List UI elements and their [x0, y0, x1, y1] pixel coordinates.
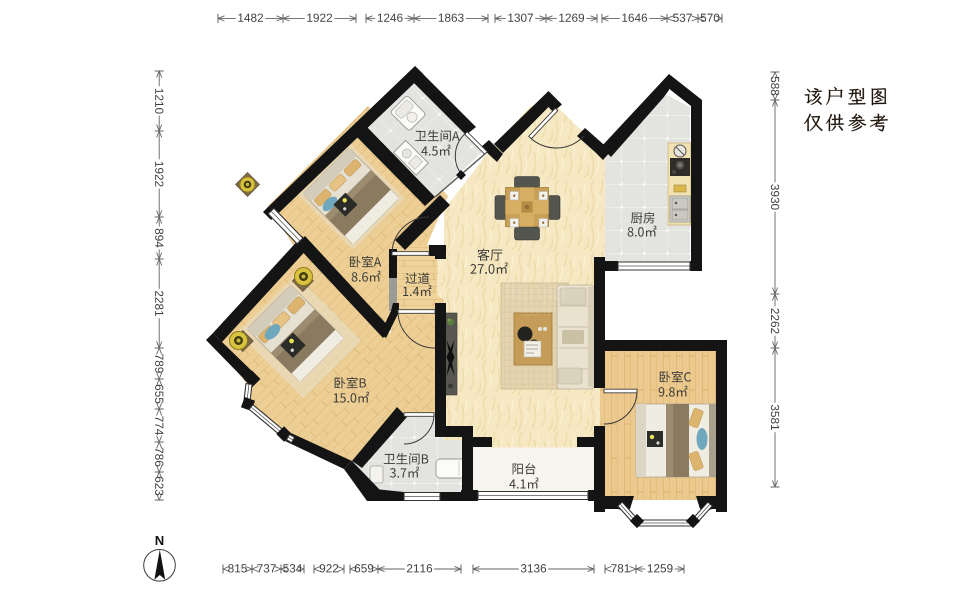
svg-text:.com: .com	[520, 303, 550, 319]
svg-text:lianjia: lianjia	[505, 279, 567, 306]
